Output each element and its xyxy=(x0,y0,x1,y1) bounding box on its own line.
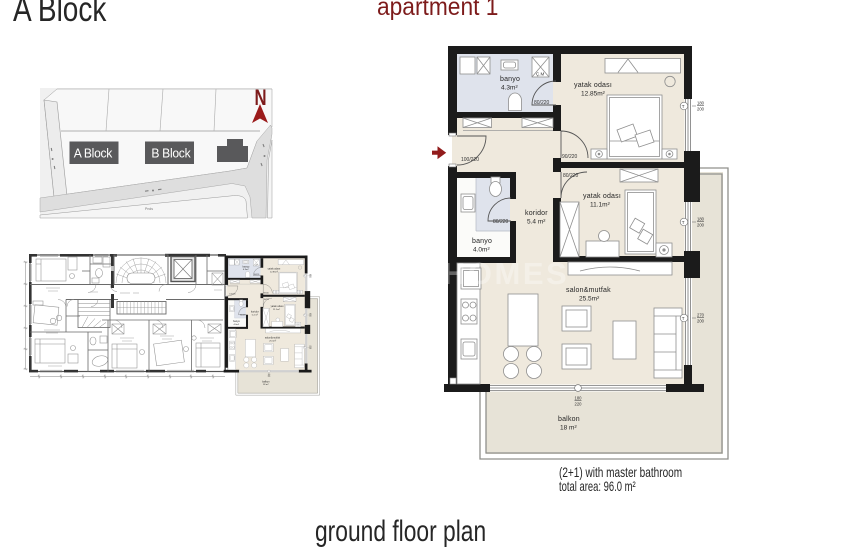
svg-text:Pnds: Pnds xyxy=(145,207,153,211)
svg-text:B Block: B Block xyxy=(151,146,191,160)
svg-text:HOMES: HOMES xyxy=(443,256,569,291)
svg-text:(2+1) with master bathroom: (2+1) with master bathroom xyxy=(559,465,682,481)
svg-text:A Block: A Block xyxy=(74,146,113,160)
svg-text:total area: 96.0 m²: total area: 96.0 m² xyxy=(559,479,636,494)
